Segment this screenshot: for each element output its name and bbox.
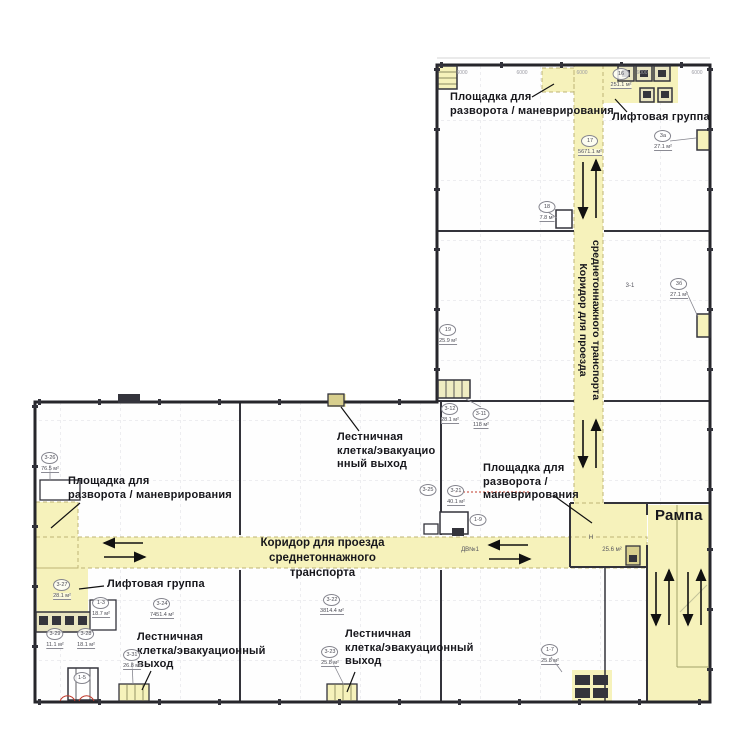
room-number: 1-7: [541, 644, 558, 656]
room-number: 3-12: [441, 403, 458, 415]
room-area: 11.1 м²: [46, 642, 63, 649]
plan-annotation: 25.6 м²: [602, 547, 621, 553]
room-number: 17: [582, 135, 599, 147]
room-area: 25.8 м²: [541, 658, 559, 665]
label-stair-bottom-left: Лестничная клетка/эвакуационный выход: [137, 631, 266, 672]
room-tag-3-21: 3-2140.1 м²: [447, 485, 465, 506]
room-tag-1-3: 1-318.7 м²: [92, 597, 110, 618]
label-turn-area-right: Площадка для разворота / маневрирования: [483, 462, 579, 503]
label-corridor-horizontal: Коридор для проезда среднетоннажного тра…: [235, 536, 410, 581]
label-stair-bottom-mid: Лестничная клетка/эвакуационный выход: [345, 628, 474, 669]
room-number: 1-5: [74, 672, 91, 684]
dimension-label: 6000: [576, 70, 587, 76]
room-tag-3-25: 3-25: [420, 484, 437, 496]
room-area: 27.1 м²: [670, 292, 688, 299]
label-turn-area-top: Площадка для разворота / маневрирования: [450, 91, 614, 118]
room-area: 28.1 м²: [441, 417, 459, 424]
room-number: 3-26: [41, 452, 58, 464]
room-tag-3-31: 3-3126.8 м²: [123, 649, 141, 670]
room-tag-1-9: 1-9: [470, 514, 487, 526]
corridor-label-line1: Коридор для проезда: [235, 536, 410, 551]
plan-svg: [0, 0, 743, 729]
room-tag-17: 175671.1 м²: [578, 135, 602, 156]
room-number: 16: [613, 68, 630, 80]
room-number: 3-28: [77, 628, 94, 640]
room-number: 3-31: [123, 649, 140, 661]
room-area: 3814.4 м²: [320, 608, 344, 615]
room-area: 5671.1 м²: [578, 149, 602, 156]
room-area: 7.8 м²: [540, 215, 555, 222]
room-number: 19: [439, 324, 456, 336]
room-tag-3а: 3а27.1 м²: [654, 130, 672, 151]
room-tag-3-11: 3-11118 м²: [473, 408, 490, 429]
label-lift-group-bottom: Лифтовая группа: [107, 578, 205, 592]
room-tag-3-27: 3-2728.1 м²: [53, 579, 71, 600]
room-tag-1-5: 1-5: [74, 672, 91, 684]
dimension-label: 6000: [456, 70, 467, 76]
room-area: 18.7 м²: [92, 611, 110, 618]
room-number: 3-24: [154, 598, 171, 610]
label-corridor-vertical: Коридор для проезда среднетоннажного тра…: [576, 220, 602, 420]
room-area: 40.1 м²: [447, 499, 465, 506]
room-area: 25.9 м²: [439, 338, 457, 345]
dimension-label: 6000: [636, 70, 647, 76]
room-area: 76.5 м²: [41, 466, 59, 473]
corridor-label-line1: Коридор для проезда: [576, 263, 589, 376]
room-tag-3-22: 3-223814.4 м²: [320, 594, 344, 615]
room-area: 251.1 м²: [611, 82, 632, 89]
room-number: 1-3: [92, 597, 109, 609]
label-ramp: Рампа: [655, 509, 703, 523]
room-number: 3-21: [447, 485, 464, 497]
corridor-label-line2: среднетоннажного транспорта: [589, 240, 602, 400]
room-number: 3-22: [324, 594, 341, 606]
label-turn-area-left: Площадка для разворота / маневрирования: [68, 475, 232, 502]
room-tag-3б: 3б27.1 м²: [670, 278, 688, 299]
room-tag-1-7: 1-725.8 м²: [541, 644, 559, 665]
room-tag-18: 187.8 м²: [539, 201, 556, 222]
room-area: 118 м²: [473, 422, 489, 429]
plan-annotation: 3-1: [626, 283, 635, 289]
room-tag-3-26: 3-2676.5 м²: [41, 452, 59, 473]
room-area: 7451.4 м²: [150, 612, 174, 619]
plan-annotation: ДВ№1: [461, 547, 479, 553]
room-tag-3-29: 3-2911.1 м²: [46, 628, 63, 649]
room-tag-16: 16251.1 м²: [611, 68, 632, 89]
building-interior: [35, 65, 710, 702]
room-number: 3а: [654, 130, 671, 142]
room-area: 25.8 м²: [321, 660, 339, 667]
room-tag-3-28: 3-2818.1 м²: [77, 628, 95, 649]
room-number: 3-11: [473, 408, 490, 420]
plan-annotation: Н: [589, 535, 593, 541]
room-tag-3-24: 3-247451.4 м²: [150, 598, 174, 619]
room-number: 18: [539, 201, 556, 213]
label-stair-mid: Лестничная клетка/эвакуацио нный выход: [337, 431, 435, 472]
dimension-label: 6000: [516, 70, 527, 76]
label-lift-group-top: Лифтовая группа: [612, 111, 710, 125]
room-area: 26.8 м²: [123, 663, 141, 670]
floor-plan: Площадка для разворота / маневрирования …: [0, 0, 743, 729]
room-number: 3-29: [47, 628, 64, 640]
room-tag-19: 1925.9 м²: [439, 324, 457, 345]
room-number: 1-9: [470, 514, 487, 526]
room-tag-3-12: 3-1228.1 м²: [441, 403, 459, 424]
room-number: 3-25: [420, 484, 437, 496]
room-number: 3-27: [53, 579, 70, 591]
corridor-label-line2: среднетоннажного транспорта: [235, 551, 410, 581]
dimension-label: 6000: [691, 70, 702, 76]
room-tag-3-23: 3-2325.8 м²: [321, 646, 339, 667]
room-area: 18.1 м²: [77, 642, 95, 649]
room-number: 3б: [670, 278, 687, 290]
room-number: 3-23: [321, 646, 338, 658]
room-area: 28.1 м²: [53, 593, 71, 600]
room-area: 27.1 м²: [654, 144, 672, 151]
